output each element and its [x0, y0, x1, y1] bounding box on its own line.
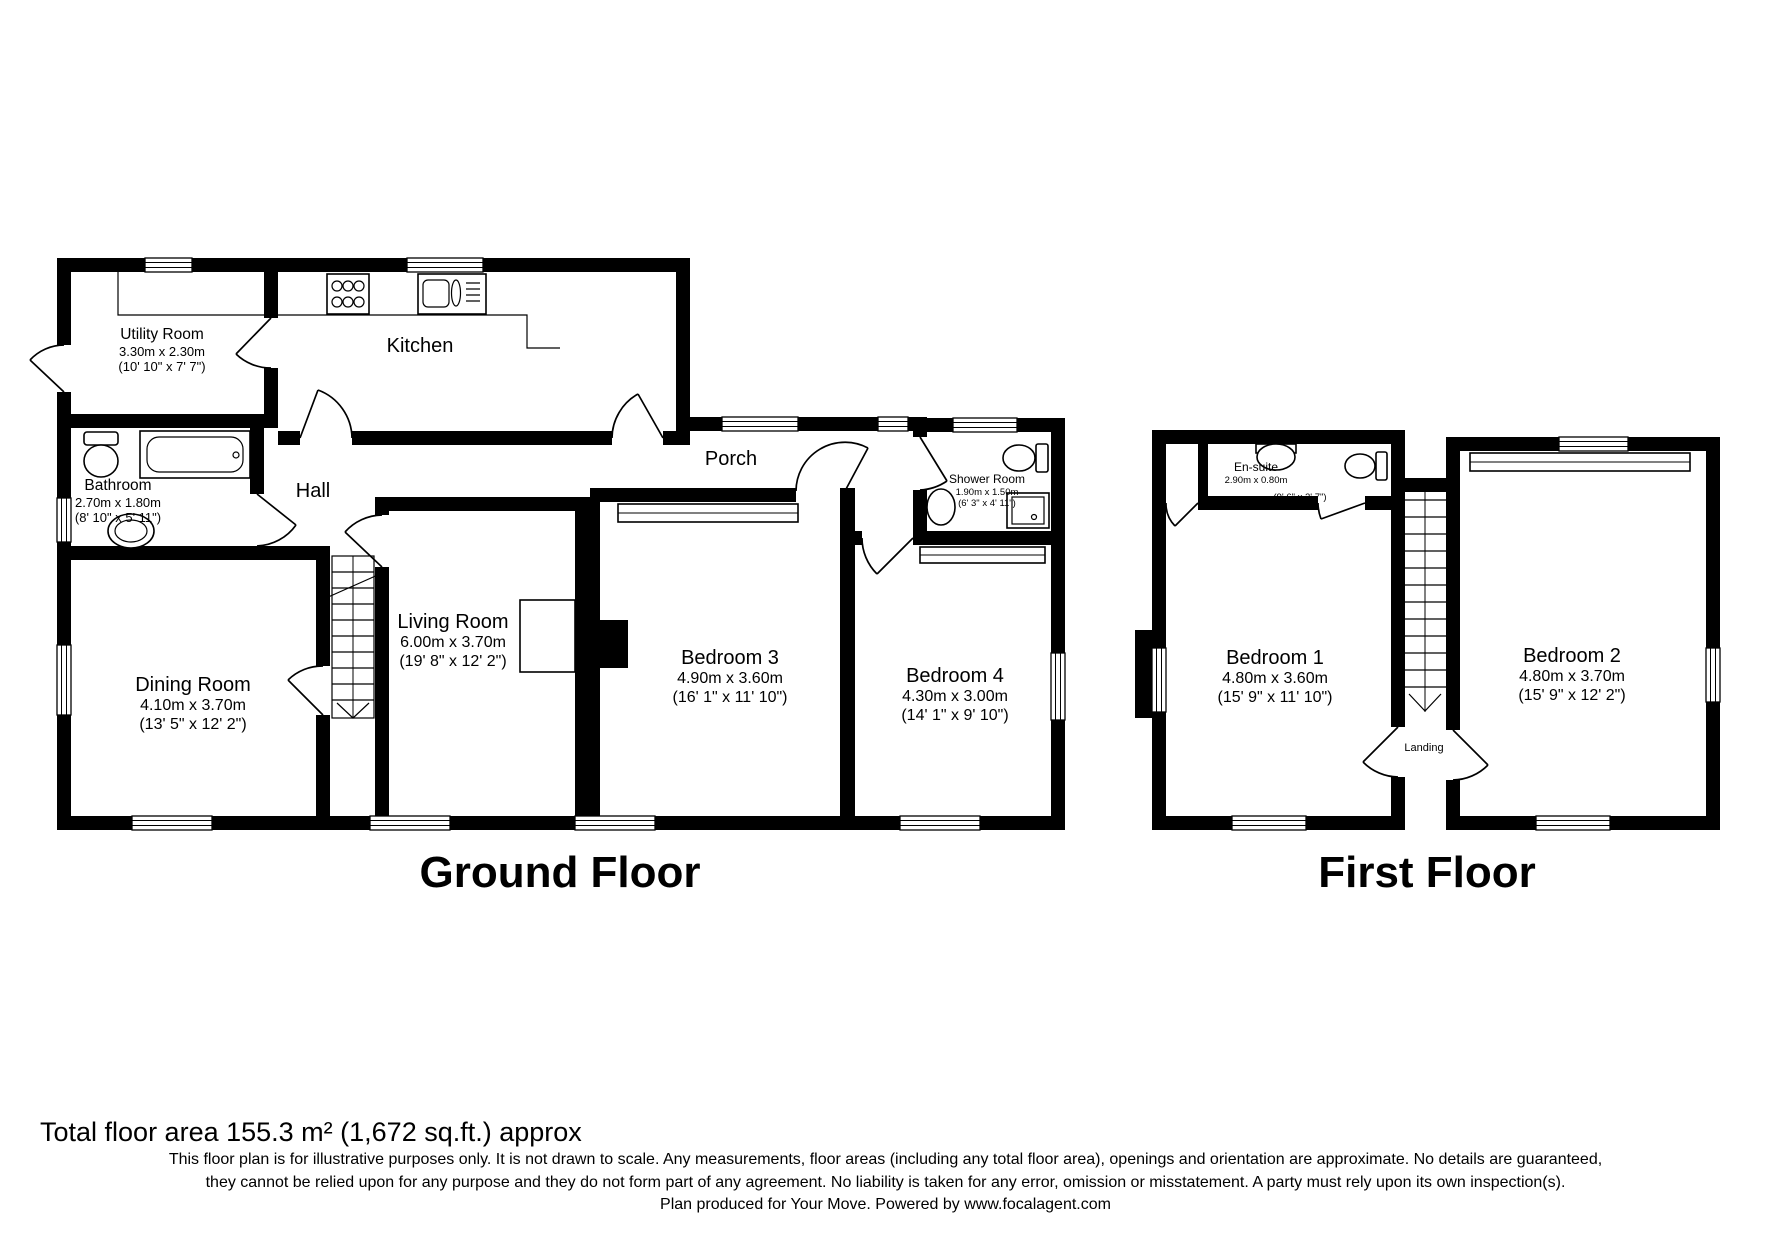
- living-room-label: Living Room 6.00m x 3.70m (19' 8" x 12' …: [397, 611, 508, 671]
- ground-floor-title: Ground Floor: [419, 848, 700, 898]
- porch-label: Porch: [705, 448, 757, 471]
- bathroom-label: Bathroom 2.70m x 1.80m (8' 10" x 5' 11"): [75, 477, 161, 525]
- disclaimer-line-1: This floor plan is for illustrative purp…: [0, 1151, 1771, 1169]
- ensuite-label: En-suite 2.90m x 0.80m: [1225, 461, 1288, 486]
- disclaimer-line-3: Plan produced for Your Move. Powered by …: [0, 1196, 1771, 1214]
- kitchen-label: Kitchen: [387, 335, 454, 358]
- bedroom2-label: Bedroom 2 4.80m x 3.70m (15' 9" x 12' 2"…: [1518, 645, 1625, 705]
- total-floor-area: Total floor area 155.3 m² (1,672 sq.ft.)…: [40, 1117, 582, 1148]
- first-floor-title: First Floor: [1318, 848, 1536, 898]
- dining-room-label: Dining Room 4.10m x 3.70m (13' 5" x 12' …: [135, 674, 251, 734]
- bedroom3-label: Bedroom 3 4.90m x 3.60m (16' 1" x 11' 10…: [672, 647, 787, 707]
- floorplan-page: (9' 6" x 2' 7"): [0, 0, 1771, 1240]
- bedroom4-label: Bedroom 4 4.30m x 3.00m (14' 1" x 9' 10"…: [901, 665, 1008, 725]
- utility-room-label: Utility Room 3.30m x 2.30m (10' 10" x 7'…: [118, 326, 205, 374]
- landing-label: Landing: [1404, 742, 1443, 755]
- bedroom1-label: Bedroom 1 4.80m x 3.60m (15' 9" x 11' 10…: [1217, 647, 1332, 707]
- labels-layer: Utility Room 3.30m x 2.30m (10' 10" x 7'…: [0, 0, 1771, 1240]
- shower-room-label: Shower Room 1.90m x 1.50m (6' 3" x 4' 11…: [949, 473, 1025, 509]
- disclaimer-line-2: they cannot be relied upon for any purpo…: [0, 1174, 1771, 1192]
- hall-label: Hall: [296, 480, 330, 503]
